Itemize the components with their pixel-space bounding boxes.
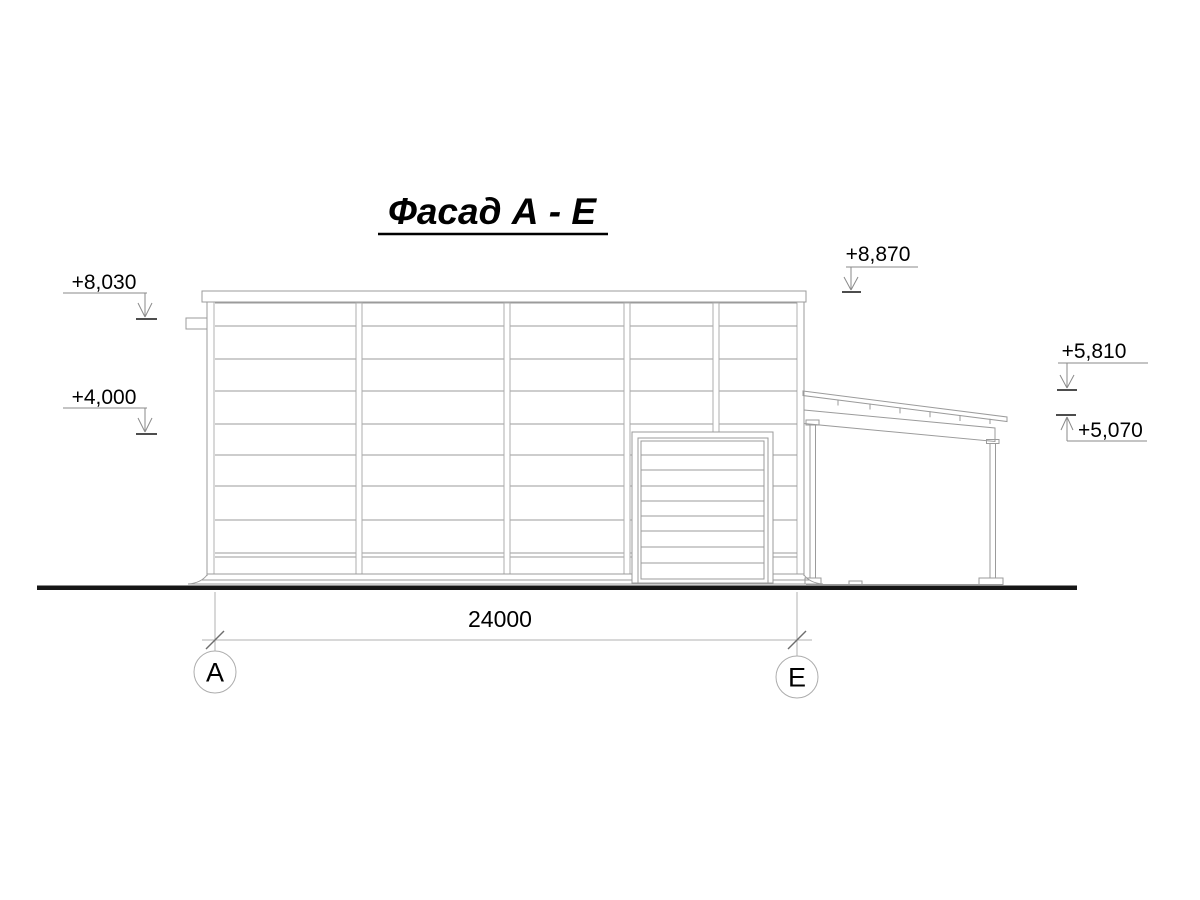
gate-inner-frame	[638, 438, 768, 583]
elevation-value: +8,030	[72, 271, 137, 294]
axis-marker-e: Е	[776, 656, 818, 698]
ground-line	[37, 586, 1077, 591]
title-text: Фасад А - Е	[388, 191, 597, 232]
annex-bases	[805, 578, 1003, 585]
drawing-title: Фасад А - Е	[378, 191, 608, 234]
axis-label-e: Е	[788, 663, 806, 693]
overall-dimension: 24000	[202, 592, 812, 656]
elevation-value: +8,870	[846, 243, 911, 266]
drawing-sheet: Фасад А - Е	[0, 0, 1200, 900]
annex-left-post	[806, 420, 819, 578]
elevation-value: +4,000	[72, 386, 137, 409]
annex-right-post	[987, 440, 1000, 579]
elevation-mark-8870: +8,870	[842, 243, 918, 292]
sectional-gate	[632, 432, 773, 583]
elevation-value: +5,810	[1062, 340, 1127, 363]
elevation-value: +5,070	[1078, 419, 1143, 442]
dimension-value: 24000	[468, 606, 532, 632]
annex-canopy	[803, 391, 1007, 585]
elevation-mark-5070: +5,070	[1056, 415, 1147, 442]
elevation-mark-5810: +5,810	[1057, 340, 1148, 390]
elevation-mark-8030: +8,030	[63, 271, 157, 319]
parapet-cap	[202, 291, 806, 302]
annex-edge-beam	[804, 410, 995, 442]
elevation-mark-4000: +4,000	[63, 386, 157, 434]
annex-roof-sheet	[803, 391, 1007, 422]
axis-marker-a: А	[194, 651, 236, 693]
axis-label-a: А	[206, 658, 224, 688]
facade-elevation-drawing: Фасад А - Е	[0, 0, 1200, 900]
eaves-ledge	[186, 318, 207, 329]
